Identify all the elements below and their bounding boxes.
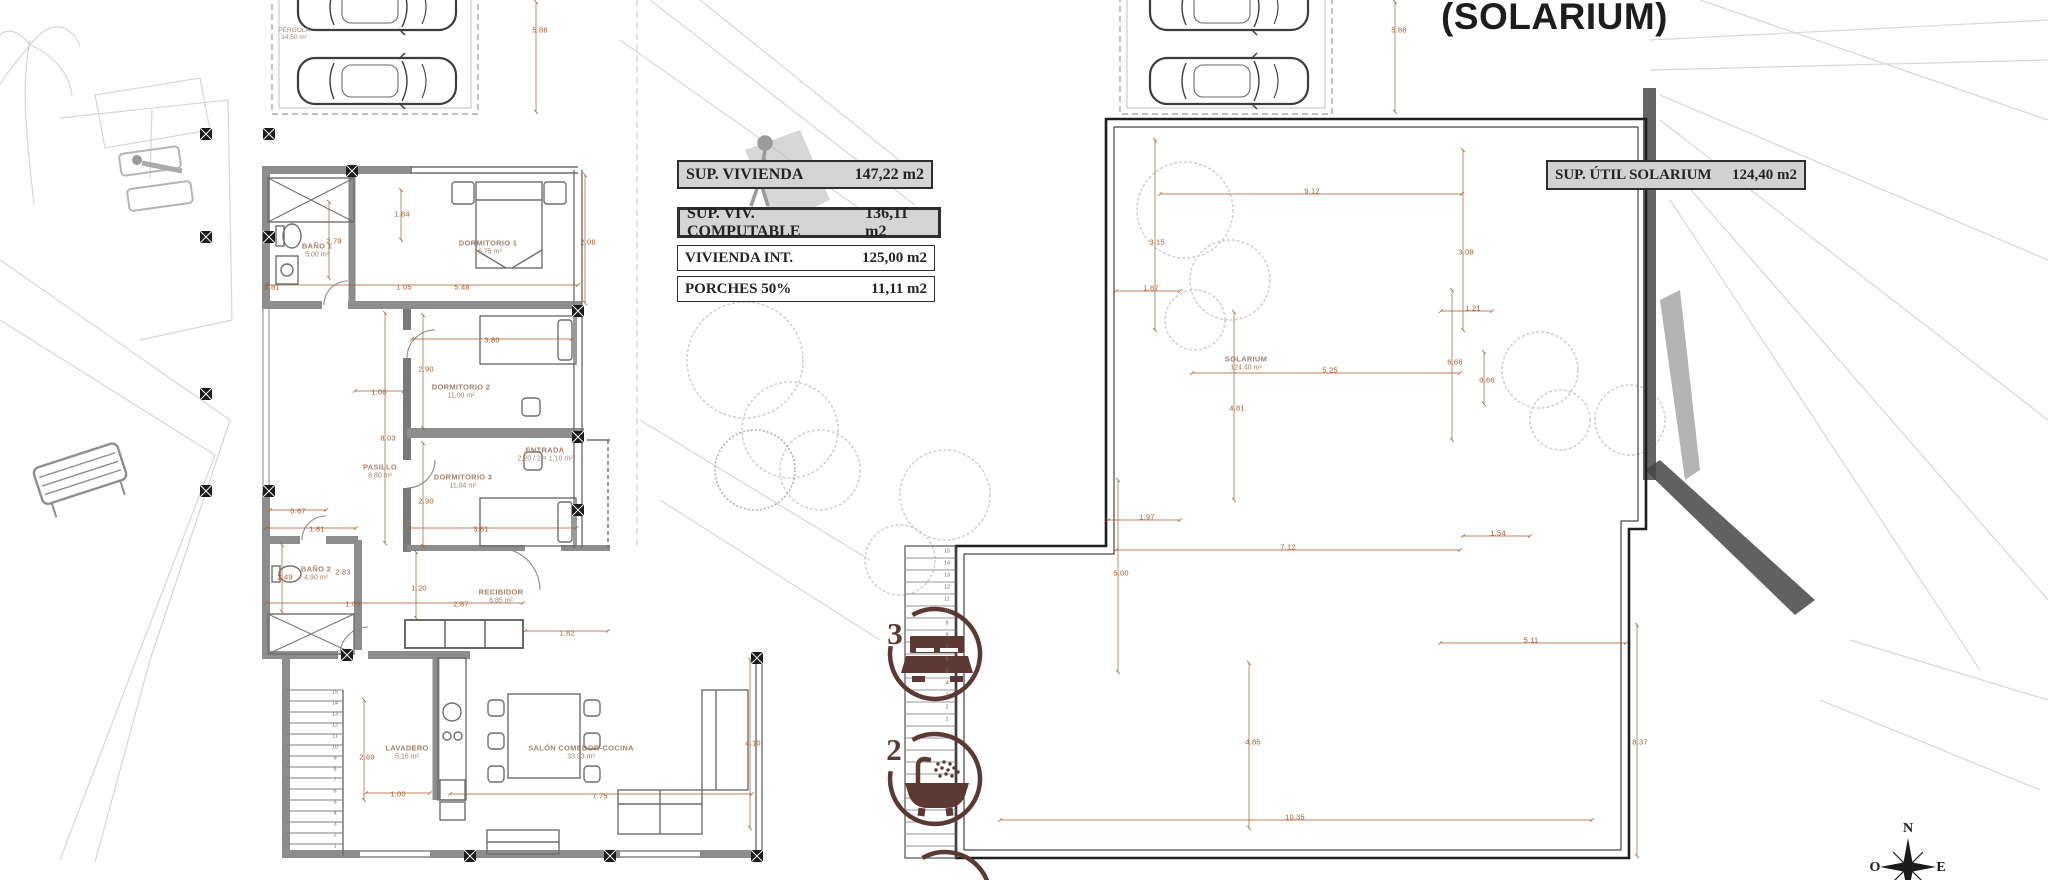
dimension-label: 9.12 (1304, 187, 1319, 195)
left-carport (272, 0, 478, 114)
dimension-label: 1.82 (559, 629, 574, 637)
dimension-label: 7.12 (1280, 543, 1295, 551)
dimension-label: 1.20 (411, 584, 426, 592)
stair-number: 9 (945, 621, 948, 627)
dimension-label: 2.49 (277, 573, 292, 581)
stair-number: 15 (944, 549, 950, 555)
row-label: SUP. VIVIENDA (686, 166, 803, 184)
stair-number: 4 (333, 811, 336, 817)
dimension-label: 2.83 (335, 568, 350, 576)
dimension-label: 1.05 (345, 600, 360, 608)
dimension-label: 1.97 (1139, 513, 1154, 521)
dimension-label: 0.67 (290, 507, 305, 515)
room-label: SOLARIUM (1225, 355, 1267, 363)
dimension-label: 5.25 (1322, 366, 1337, 374)
dimension-label: 5.88 (532, 26, 547, 34)
stair-number: 2 (333, 833, 336, 839)
room-label: 11,04 m² (449, 483, 476, 490)
table-row: SUP. VIV. COMPUTABLE 136,11 m2 (677, 207, 941, 238)
stair-number: 3 (333, 822, 336, 828)
room-label: 11,00 m² (447, 393, 474, 400)
right-plan-walls (905, 119, 1646, 858)
dimension-label: 1.54 (1490, 529, 1505, 537)
dimension-label: 3.81 (473, 525, 488, 533)
dimension-label: 7.75 (592, 792, 607, 800)
stair-number: 12 (944, 585, 950, 591)
compass-rose-icon (1880, 838, 1936, 880)
stair-number: 8 (945, 633, 948, 639)
table-row: VIVIENDA INT. 125,00 m2 (677, 245, 935, 271)
dimension-label: 5.00 (1113, 569, 1128, 577)
room-label: ENTRADA (526, 446, 565, 454)
dimension-label: 3.80 (484, 336, 499, 344)
room-label: 16,75 m² (474, 249, 502, 256)
stair-number: 1 (945, 717, 948, 723)
table-row: SUP. VIVIENDA 147,22 m2 (677, 160, 933, 189)
row-value: 147,22 m2 (855, 166, 924, 184)
bedroom-count: 3 (887, 616, 903, 652)
stair-number: 10 (332, 745, 338, 751)
dimension-label: 1.81 (264, 283, 279, 291)
dimension-label: 1.00 (371, 388, 386, 396)
dimension-label: 1.21 (1465, 304, 1480, 312)
room-label: 4,90 m² (304, 575, 328, 582)
stair-number: 7 (333, 778, 336, 784)
room-label: 5,16 m² (395, 754, 419, 761)
stair-number: 3 (945, 693, 948, 699)
stair-number: 15 (332, 690, 338, 696)
stair-number: 13 (332, 712, 338, 718)
table-row: PORCHES 50% 11,11 m2 (677, 276, 935, 302)
stair-number: 7 (945, 645, 948, 651)
compass-north-label: N (1903, 821, 1913, 837)
stair-number: 11 (944, 597, 950, 603)
room-label: 8,80 m² (368, 473, 392, 480)
dimension-label: 3.15 (1149, 238, 1164, 246)
stair-number: 5 (333, 800, 336, 806)
dimension-label: 2.90 (418, 365, 433, 373)
stair-number: 13 (944, 573, 950, 579)
room-label: DORMITORIO 1 (459, 239, 517, 247)
dimension-label: 6.66 (1447, 358, 1462, 366)
row-value: 11,11 m2 (871, 281, 927, 298)
stair-number: 2 (945, 705, 948, 711)
room-label: PASILLO (363, 463, 397, 471)
dimension-label: 10.35 (1285, 813, 1305, 821)
room-label: DORMITORIO 3 (434, 473, 492, 481)
compass-west-label: O (1870, 860, 1881, 876)
stair-number: 10 (944, 609, 950, 615)
plan-drawing (0, 0, 2048, 880)
dimension-label: 2.90 (418, 497, 433, 505)
stair-number: 11 (332, 734, 338, 740)
stair-number: 14 (944, 561, 950, 567)
row-value: 136,11 m2 (865, 205, 931, 241)
dimension-label: 2.79 (326, 237, 341, 245)
room-label: SALÓN COMEDOR-COCINA (528, 744, 634, 752)
stair-number: 6 (945, 657, 948, 663)
room-label: 33,93 m² (567, 754, 595, 761)
dimension-label: 2.87 (453, 600, 468, 608)
dimension-label: 8.37 (1632, 738, 1647, 746)
dimension-label: 2.06 (580, 238, 595, 246)
room-label: 2,20 / 2 = 1,10 m² (517, 456, 572, 463)
right-carport (1120, 0, 1332, 114)
stair-number: 5 (945, 669, 948, 675)
stair-number: 4 (945, 681, 948, 687)
stair-number: 8 (333, 767, 336, 773)
floor-plan-sheet: PÉRGOLA34,50 m²BAÑO 15,00 m²DORMITORIO 1… (0, 0, 2048, 880)
row-value: 125,00 m2 (862, 250, 927, 267)
room-label: 5,00 m² (305, 252, 329, 259)
bath-icon (905, 759, 969, 817)
background-sketch (0, 0, 2048, 862)
dimension-label: 1.84 (394, 210, 409, 218)
row-value: 124,40 m2 (1732, 167, 1797, 184)
room-label: 6,85 m² (489, 598, 513, 605)
dimension-label: 3.08 (1458, 248, 1473, 256)
solarium-area-box: SUP. ÚTIL SOLARIUM 124,40 m2 (1546, 160, 1806, 190)
dimension-label: 5.11 (1524, 636, 1539, 644)
dimension-label: 1.81 (309, 525, 324, 533)
dimension-label: 1.05 (396, 283, 411, 291)
stair-number: 9 (333, 756, 336, 762)
bed-icon (901, 636, 973, 682)
dimension-label: 4.10 (745, 739, 760, 747)
room-label: 34,50 m² (281, 35, 307, 42)
sheet-title: (SOLARIUM) (1441, 0, 1668, 38)
compass-east-label: E (1936, 860, 1945, 876)
stair-number: 14 (332, 701, 338, 707)
stair-number: 1 (333, 844, 336, 850)
room-label: 124,40 m² (1230, 365, 1262, 372)
dimension-label: 4.81 (1229, 404, 1244, 412)
row-label: PORCHES 50% (685, 281, 791, 298)
dimension-label: 5.88 (1391, 26, 1406, 34)
stair-number: 12 (332, 723, 338, 729)
dimension-label: 8.03 (380, 434, 395, 442)
dimension-label: 5.48 (454, 283, 469, 291)
row-label: SUP. ÚTIL SOLARIUM (1555, 167, 1712, 184)
stair-number: 6 (333, 789, 336, 795)
room-label: LAVADERO (385, 744, 428, 752)
row-label: SUP. VIV. COMPUTABLE (687, 205, 865, 241)
room-label: BAÑO 2 (301, 565, 331, 573)
room-label: DORMITORIO 2 (432, 383, 490, 391)
row-label: VIVIENDA INT. (685, 250, 793, 267)
dimension-label: 4.85 (1245, 738, 1260, 746)
dimension-label: 1.87 (1143, 284, 1158, 292)
dimension-label: 1.00 (390, 790, 405, 798)
dimension-label: 0.66 (1479, 376, 1494, 384)
bathroom-count: 2 (886, 732, 902, 768)
room-label: RECIBIDOR (479, 588, 524, 596)
left-plan-furniture (268, 178, 748, 856)
dimension-label: 2.69 (359, 753, 374, 761)
